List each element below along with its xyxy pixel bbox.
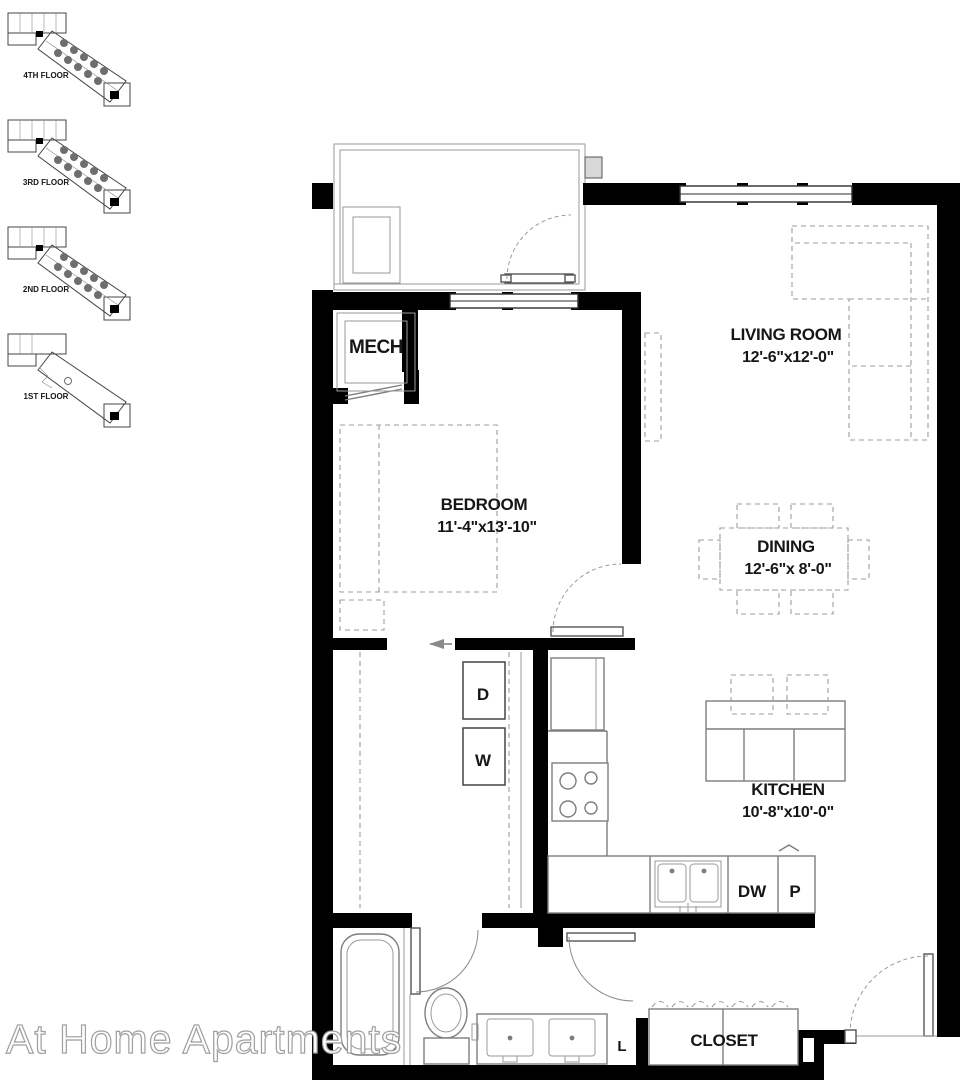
dining-label: DINING: [757, 537, 815, 556]
floor-label-1st: 1ST FLOOR: [24, 392, 69, 401]
floor-thumbnails: 4TH FLOOR 3RD FLOOR: [8, 13, 130, 427]
console-outline: [645, 333, 661, 441]
floor-thumbnail-4th: 4TH FLOOR: [8, 13, 130, 106]
toilet: [424, 988, 469, 1064]
unit-marker-dark: [36, 31, 43, 37]
opening-arrow: [429, 639, 452, 649]
bedroom: BEDROOM 11'-4"x13'-10": [340, 425, 537, 630]
kitchen-label: KITCHEN: [751, 780, 824, 799]
floor-label-3rd: 3RD FLOOR: [23, 178, 69, 187]
entry-door: [845, 954, 937, 1043]
floor-label-4th: 4TH FLOOR: [23, 71, 69, 80]
linen-label: L: [617, 1038, 626, 1055]
floor-thumbnail-1st: 1ST FLOOR: [8, 334, 130, 427]
laundry-hall: D W: [360, 652, 521, 908]
living-room-dimensions: 12'-6"x12'-0": [742, 349, 834, 366]
vanity: [472, 1014, 607, 1064]
mech-room-label: MECH: [349, 337, 403, 358]
floor-thumbnail-3rd: 3RD FLOOR: [8, 120, 130, 213]
floor-thumbnail-2nd: 2ND FLOOR: [8, 227, 130, 320]
living-room: LIVING ROOM 12'-6"x12'-0": [645, 226, 928, 441]
balcony: [334, 144, 602, 290]
dining-dimensions: 12'-6"x 8'-0": [744, 561, 831, 578]
hanging-clothes: [652, 1002, 788, 1008]
floor-plan-page: { "watermark": { "text": "At Home Apartm…: [0, 0, 961, 1080]
highlighted-unit-marker: [110, 91, 119, 99]
dishwasher-label: DW: [738, 882, 767, 901]
living-room-label: LIVING ROOM: [731, 325, 842, 344]
bedroom-dimensions: 11'-4"x13'-10": [437, 519, 537, 536]
watermark: At Home Apartments: [6, 1016, 402, 1063]
balcony-storage: [343, 207, 400, 283]
bedroom-door: [551, 564, 623, 636]
highlighted-unit-marker: [110, 305, 119, 313]
closet-label: CLOSET: [690, 1031, 758, 1050]
kitchen-island: [706, 675, 845, 781]
mech-bifold-door: [345, 385, 402, 400]
hall-door: [567, 933, 635, 1001]
main-floor-plan: MECH BEDROOM 11'-4"x13'-10" LIVING ROOM …: [312, 144, 960, 1080]
unit-marker-dark: [36, 245, 43, 251]
pantry-label: P: [789, 882, 800, 901]
dryer-label: D: [477, 685, 489, 704]
floor-label-2nd: 2ND FLOOR: [23, 285, 69, 294]
kitchen-dimensions: 10'-8"x10'-0": [742, 804, 834, 821]
highlighted-unit-marker: [110, 412, 119, 420]
highlighted-unit-marker: [110, 198, 119, 206]
kitchen-counter: DW P: [548, 845, 815, 913]
entry-closet: CLOSET: [649, 1002, 798, 1066]
nightstand-outline: [340, 600, 384, 630]
pantry-door-tick: [779, 845, 799, 851]
closet-niche: [803, 1038, 814, 1062]
unit-marker-dark: [36, 138, 43, 144]
bathroom-door: [411, 928, 478, 994]
floor-plan-canvas: 4TH FLOOR 3RD FLOOR: [0, 0, 961, 1080]
washer-label: W: [475, 751, 492, 770]
bedroom-label: BEDROOM: [441, 495, 528, 514]
stove: [552, 763, 608, 821]
balcony-door: [501, 215, 575, 283]
dining-area: DINING 12'-6"x 8'-0": [699, 504, 869, 614]
walls: [312, 183, 960, 1080]
unit-marker: [65, 378, 72, 385]
column: [585, 157, 602, 178]
kitchen: DW P KITCHEN 10'-8"x10'-0": [548, 658, 845, 913]
